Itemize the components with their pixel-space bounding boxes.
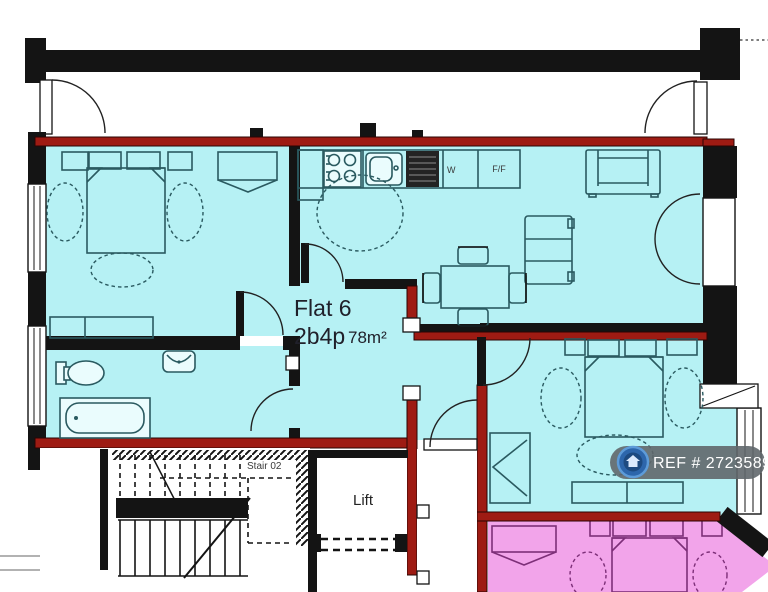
toilet: [56, 361, 104, 385]
stair-landing: [116, 498, 248, 518]
column: [417, 505, 429, 518]
basin: [163, 351, 195, 372]
entrance-door-leaf: [424, 439, 477, 450]
wall-hatching: [296, 450, 310, 546]
washing-machine: [406, 151, 439, 187]
washer-label: W: [447, 165, 456, 175]
flat-area: 78m²: [348, 328, 387, 347]
corridor-door-arc: [52, 80, 105, 133]
bathtub: [60, 398, 150, 438]
badge-ref-text: REF # 2723589: [653, 455, 768, 472]
flat-label: Flat 6: [294, 295, 352, 321]
door-leaf: [236, 291, 244, 336]
corridor-door-leaf: [694, 82, 707, 134]
lift-label: Lift: [353, 492, 374, 509]
door-leaf: [477, 337, 486, 386]
column: [286, 356, 299, 370]
wall-hatching: [112, 450, 298, 460]
ref-badge: REF # 2723589: [610, 446, 768, 479]
column: [417, 571, 429, 584]
window: [28, 184, 46, 272]
balcony-step: [700, 384, 758, 408]
stair-core: Stair 02: [40, 448, 310, 592]
column: [403, 318, 420, 332]
window: [28, 326, 46, 426]
hob: [324, 151, 361, 187]
floor-plan: W F/F: [0, 0, 768, 592]
fridge-freezer-label: F/F: [492, 164, 506, 174]
flat-spec: 2b4p: [294, 323, 345, 349]
lift: Lift: [308, 450, 408, 592]
corridor-door-arc: [645, 81, 697, 133]
door-leaf: [301, 243, 309, 283]
sink: [366, 153, 402, 185]
adjacent-flat-room: [488, 519, 768, 592]
stair-label: Stair 02: [247, 461, 282, 472]
corridor-door-leaf: [40, 80, 52, 134]
corridor-top-wall: [45, 50, 705, 72]
corridor: [25, 28, 768, 139]
column: [403, 386, 420, 400]
